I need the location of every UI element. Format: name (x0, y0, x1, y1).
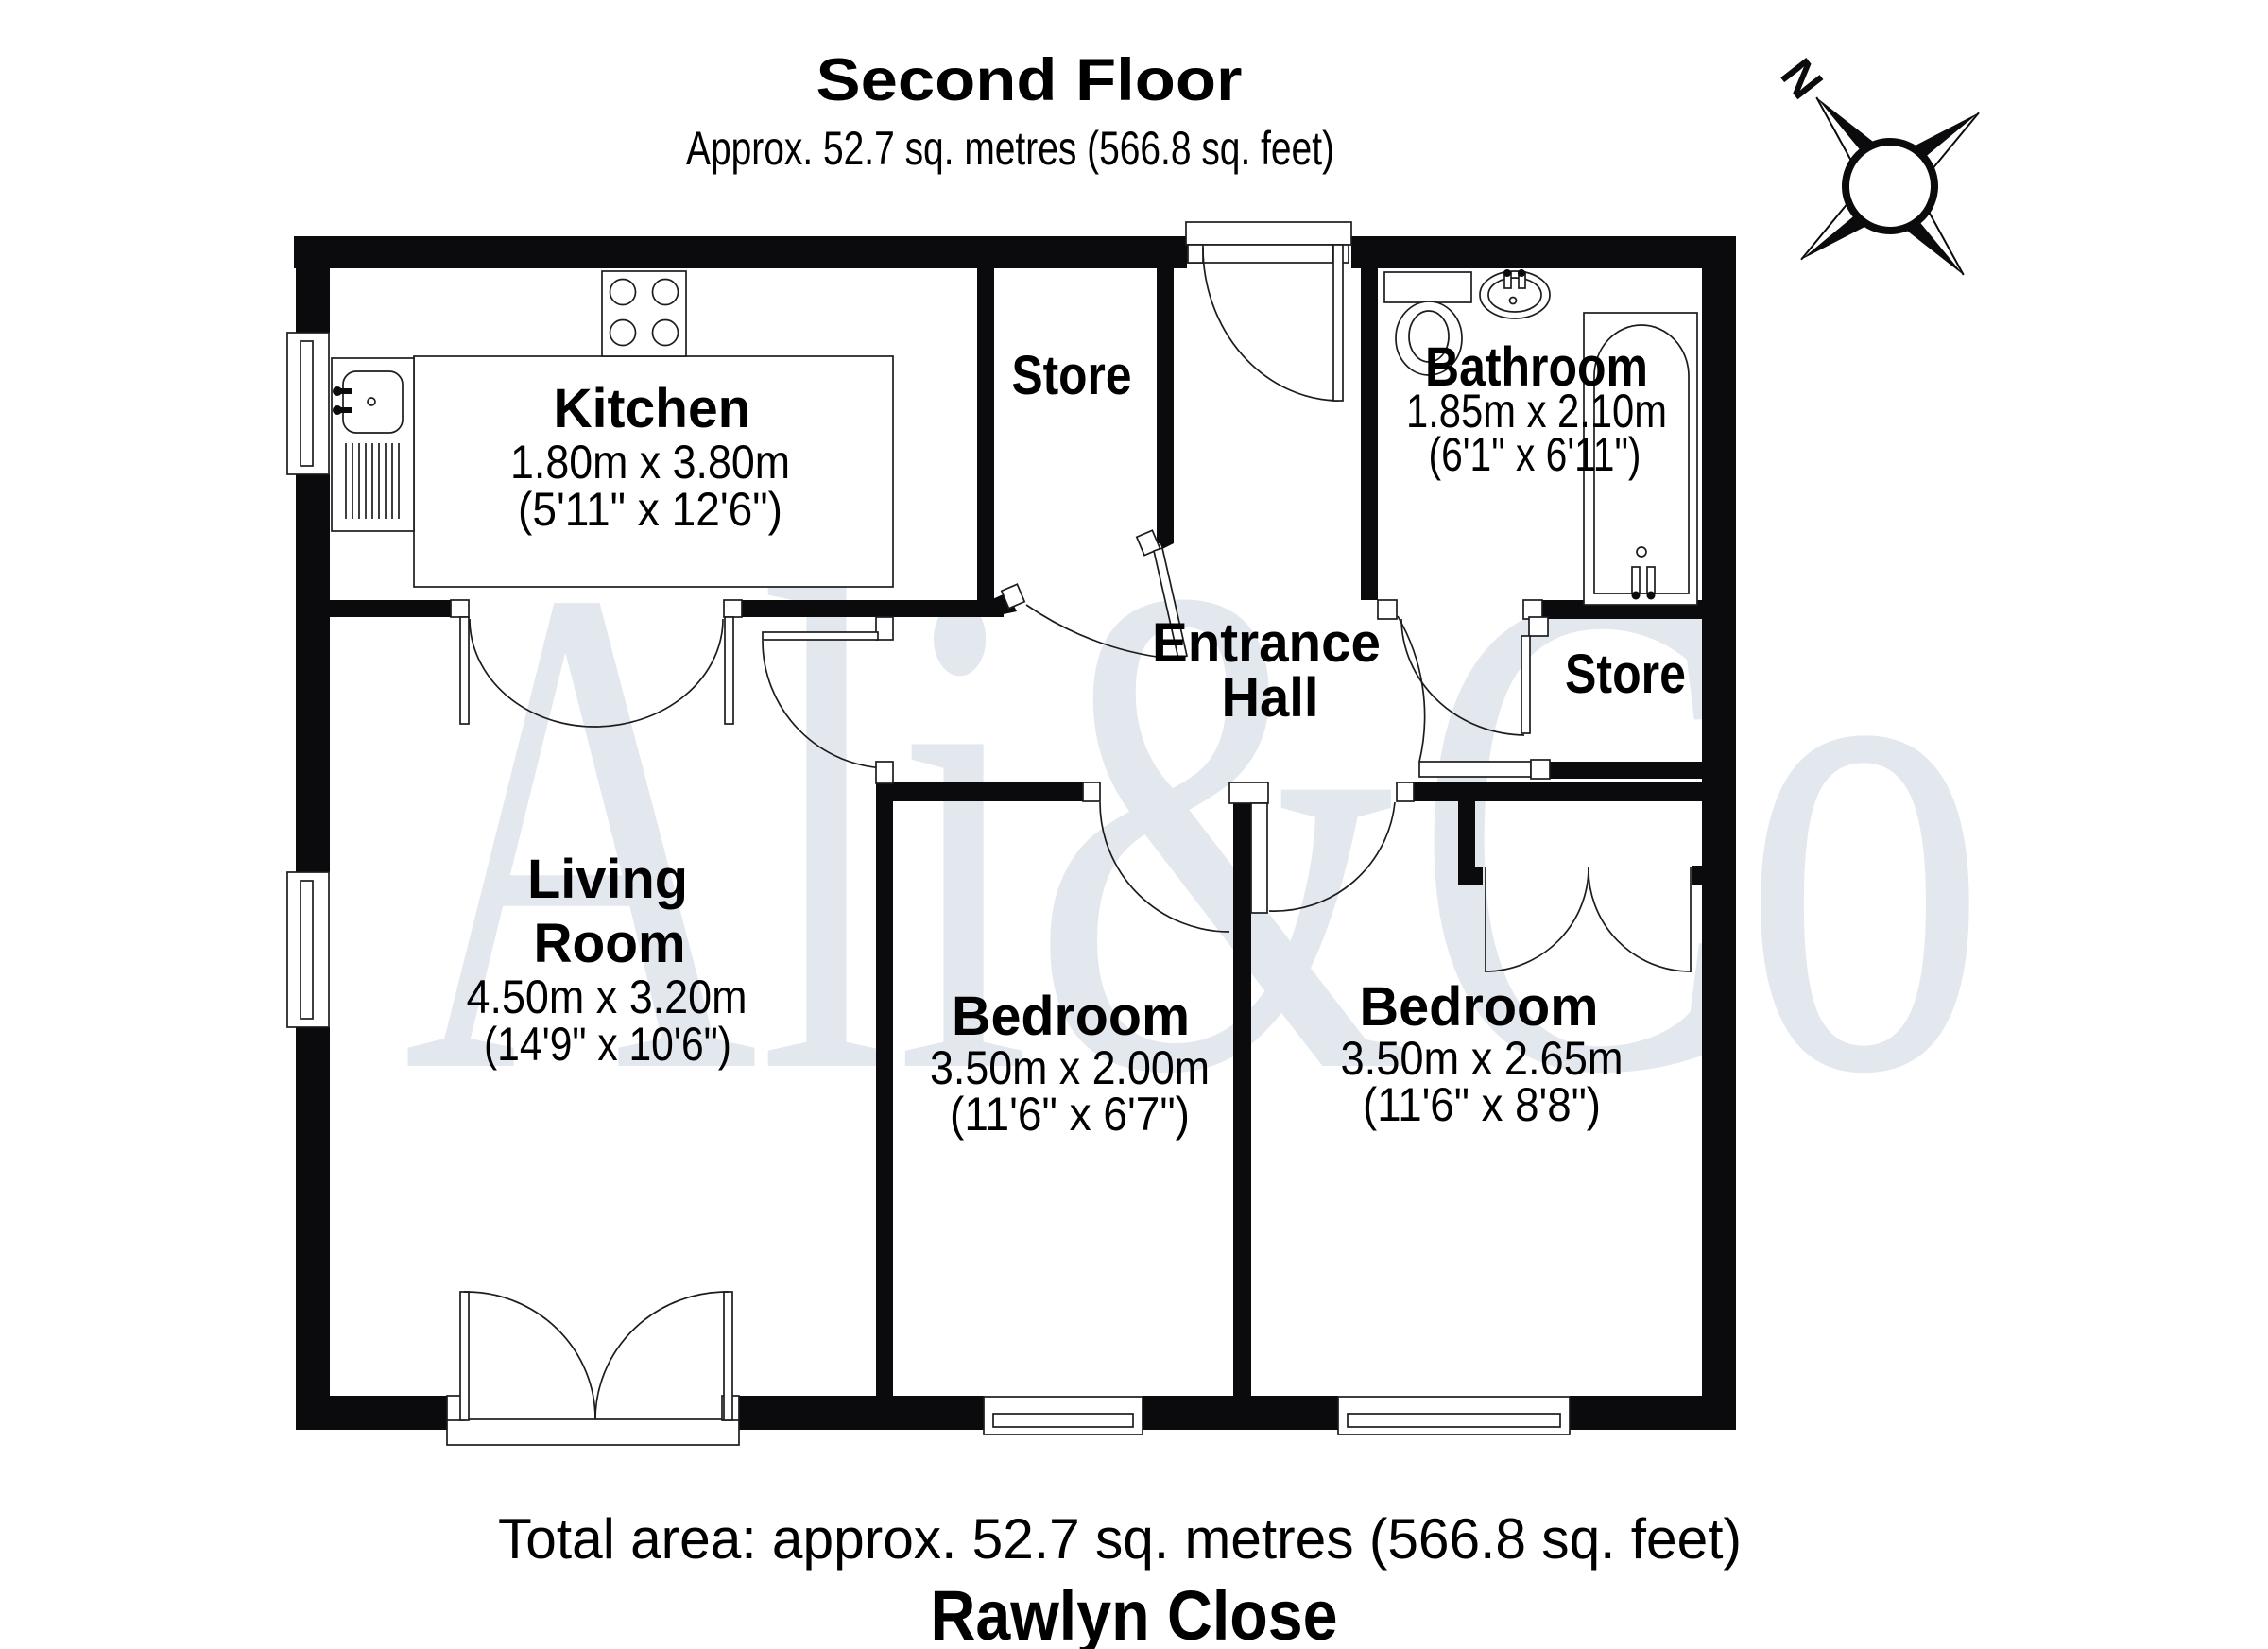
svg-text:Store: Store (1565, 644, 1686, 705)
svg-text:(11'6" x 6'7"): (11'6" x 6'7") (950, 1088, 1190, 1141)
svg-text:(6'1" x 6'11"): (6'1" x 6'11") (1429, 428, 1641, 481)
svg-text:(14'9" x 10'6"): (14'9" x 10'6") (484, 1018, 731, 1071)
svg-text:1.80m x 3.80m: 1.80m x 3.80m (510, 436, 790, 489)
svg-text:Approx. 52.7 sq. metres (566.8: Approx. 52.7 sq. metres (566.8 sq. feet) (686, 122, 1334, 175)
svg-text:Hall: Hall (1222, 667, 1319, 729)
svg-text:(11'6" x 8'8"): (11'6" x 8'8") (1363, 1078, 1601, 1131)
svg-text:4.50m x 3.20m: 4.50m x 3.20m (467, 971, 747, 1023)
svg-text:3.50m x 2.65m: 3.50m x 2.65m (1341, 1032, 1624, 1085)
svg-text:Living: Living (527, 849, 688, 910)
svg-text:Second Floor: Second Floor (816, 47, 1243, 113)
svg-text:Bedroom: Bedroom (952, 986, 1190, 1047)
svg-text:Rawlyn Close: Rawlyn Close (931, 1576, 1338, 1649)
svg-text:Kitchen: Kitchen (554, 378, 751, 439)
svg-text:Total area: approx. 52.7 sq. m: Total area: approx. 52.7 sq. metres (566… (498, 1507, 1742, 1571)
svg-text:Bedroom: Bedroom (1360, 976, 1599, 1038)
svg-text:(5'11" x 12'6"): (5'11" x 12'6") (518, 483, 782, 536)
svg-text:Room: Room (534, 913, 686, 974)
svg-text:Entrance: Entrance (1152, 612, 1381, 674)
svg-text:3.50m x 2.00m: 3.50m x 2.00m (930, 1041, 1210, 1094)
svg-text:Store: Store (1012, 345, 1132, 406)
